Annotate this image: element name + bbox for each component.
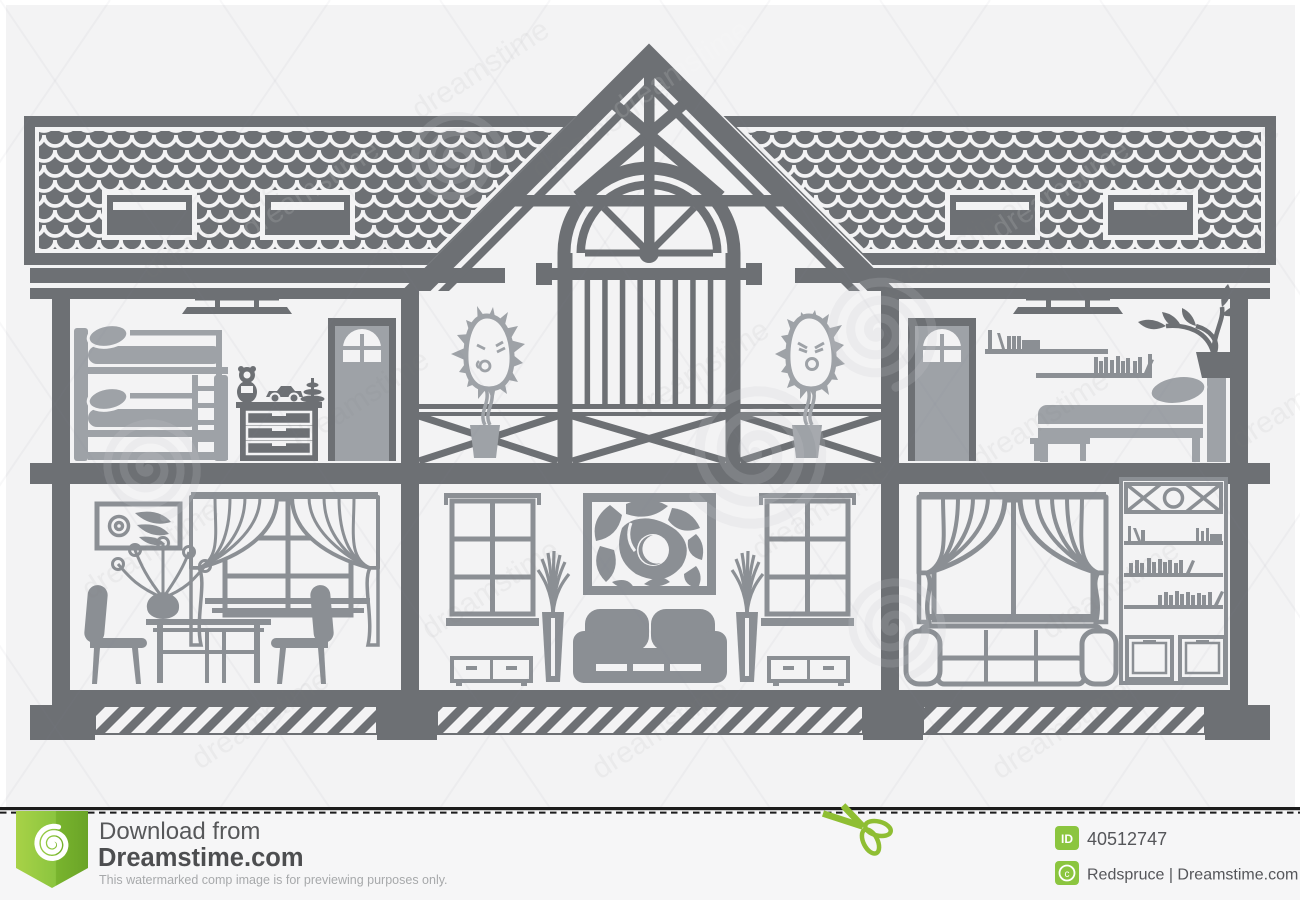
svg-text:Redspruce | Dreamstime.com: Redspruce | Dreamstime.com: [1087, 867, 1298, 884]
svg-text:ID: ID: [1061, 832, 1073, 846]
svg-text:This watermarked comp image is: This watermarked comp image is for previ…: [99, 873, 448, 887]
svg-text:Download from: Download from: [99, 818, 260, 845]
svg-text:Dreamstime.com: Dreamstime.com: [98, 844, 304, 872]
svg-text:c: c: [1065, 869, 1070, 880]
svg-text:40512747: 40512747: [1087, 829, 1167, 849]
